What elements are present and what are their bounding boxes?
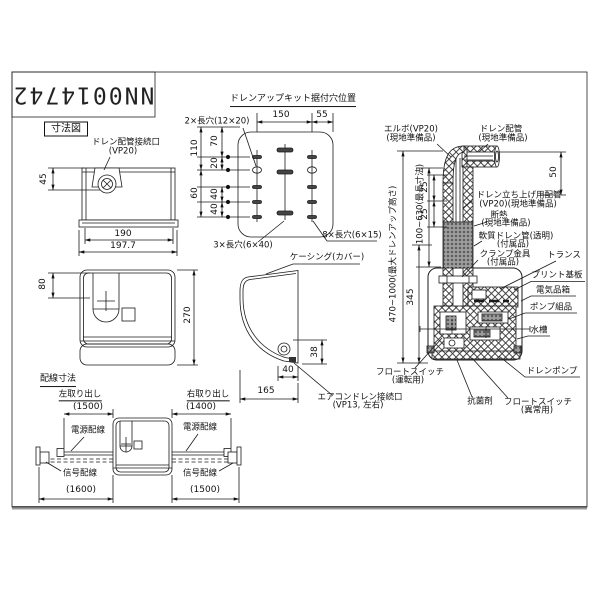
section-title-dimensions: 寸法図 <box>44 122 88 137</box>
insulation-note: (現地準備品) <box>481 219 530 228</box>
dim-270: 270 <box>184 306 194 323</box>
dim-1500-right-signal: (1500) <box>190 486 220 496</box>
dim-165: 165 <box>257 387 274 397</box>
clamp-note: (付属品) <box>487 258 519 267</box>
dim-345: 345 <box>407 288 417 305</box>
left-takeout-heading: 左取り出し <box>59 390 102 401</box>
dim-45: 45 <box>40 173 50 184</box>
dim-1400-right-power: (1400) <box>186 403 216 413</box>
slot-label-3x: 3×長穴(6×40) <box>213 241 273 250</box>
section-title-wiring: 配線寸法 <box>40 375 76 387</box>
dim-80: 80 <box>39 278 49 289</box>
dim-40: 40 <box>282 366 293 376</box>
float-switch-run-note: (運転用) <box>392 376 424 385</box>
transformer-label: トランス <box>547 251 581 260</box>
dim-40b: 40 <box>211 203 221 214</box>
soft-tube-note: (付属品) <box>497 240 529 249</box>
riser-pipe-note: (VP20)(現地準備品) <box>479 200 557 209</box>
technical-drawing: NN0014742 寸法図 ドレンアップキット据付穴位置 ドレン配管接続口 (V… <box>0 0 600 600</box>
aircon-port-size: (VP13, 左右) <box>333 401 384 410</box>
dim-1600-left-signal: (1600) <box>66 486 96 496</box>
slot-label-8x: 8×長穴(6×15) <box>322 231 382 240</box>
dim-lift-range: 470~1000(最大ドレンアップ高さ) <box>389 186 398 323</box>
dim-40a: 40 <box>211 188 221 199</box>
dim-38: 38 <box>311 346 321 357</box>
dim-150: 150 <box>272 111 289 121</box>
dim-60: 60 <box>191 187 201 198</box>
slot-label-2x: 2×長穴(12×20) <box>185 117 250 126</box>
dim-70: 70 <box>211 135 221 146</box>
dim-riser-range: 100~630(最長寸法) <box>416 164 425 244</box>
drain-pump-label: ドレンポンプ <box>527 367 578 376</box>
signal-wiring-left-label: 信号配線 <box>63 469 97 478</box>
power-wiring-left-label: 電源配線 <box>71 426 105 435</box>
document-number: NN0014742 <box>12 81 155 106</box>
dim-1500-left-power: (1500) <box>73 403 103 413</box>
dim-110: 110 <box>191 139 201 156</box>
float-switch-abn-note: (異常用) <box>521 406 553 415</box>
dim-190: 190 <box>114 230 131 240</box>
dim-20: 20 <box>211 157 221 168</box>
drain-pipe-note: (現地準備品) <box>478 134 527 143</box>
pump-assembly-label: ポンプ組品 <box>530 303 572 312</box>
dim-197-7: 197.7 <box>110 242 136 252</box>
dim-55: 55 <box>316 111 327 121</box>
casing-label: ケーシング(カバー) <box>290 253 364 262</box>
drain-port-size: (VP20) <box>109 147 137 156</box>
right-takeout-heading: 右取り出し <box>187 390 230 401</box>
pcb-label: プリント基板 <box>531 271 582 280</box>
dim-50: 50 <box>550 166 560 177</box>
power-wiring-right-label: 電源配線 <box>183 423 217 432</box>
section-title-mounting-holes: ドレンアップキット据付穴位置 <box>230 95 356 107</box>
electrical-box-label: 電気品箱 <box>536 286 570 295</box>
tank-label: 水槽 <box>530 326 547 335</box>
antibacterial-label: 抗菌剤 <box>467 397 493 406</box>
elbow-note: (現地準備品) <box>386 134 435 143</box>
signal-wiring-right-label: 信号配線 <box>183 469 217 478</box>
